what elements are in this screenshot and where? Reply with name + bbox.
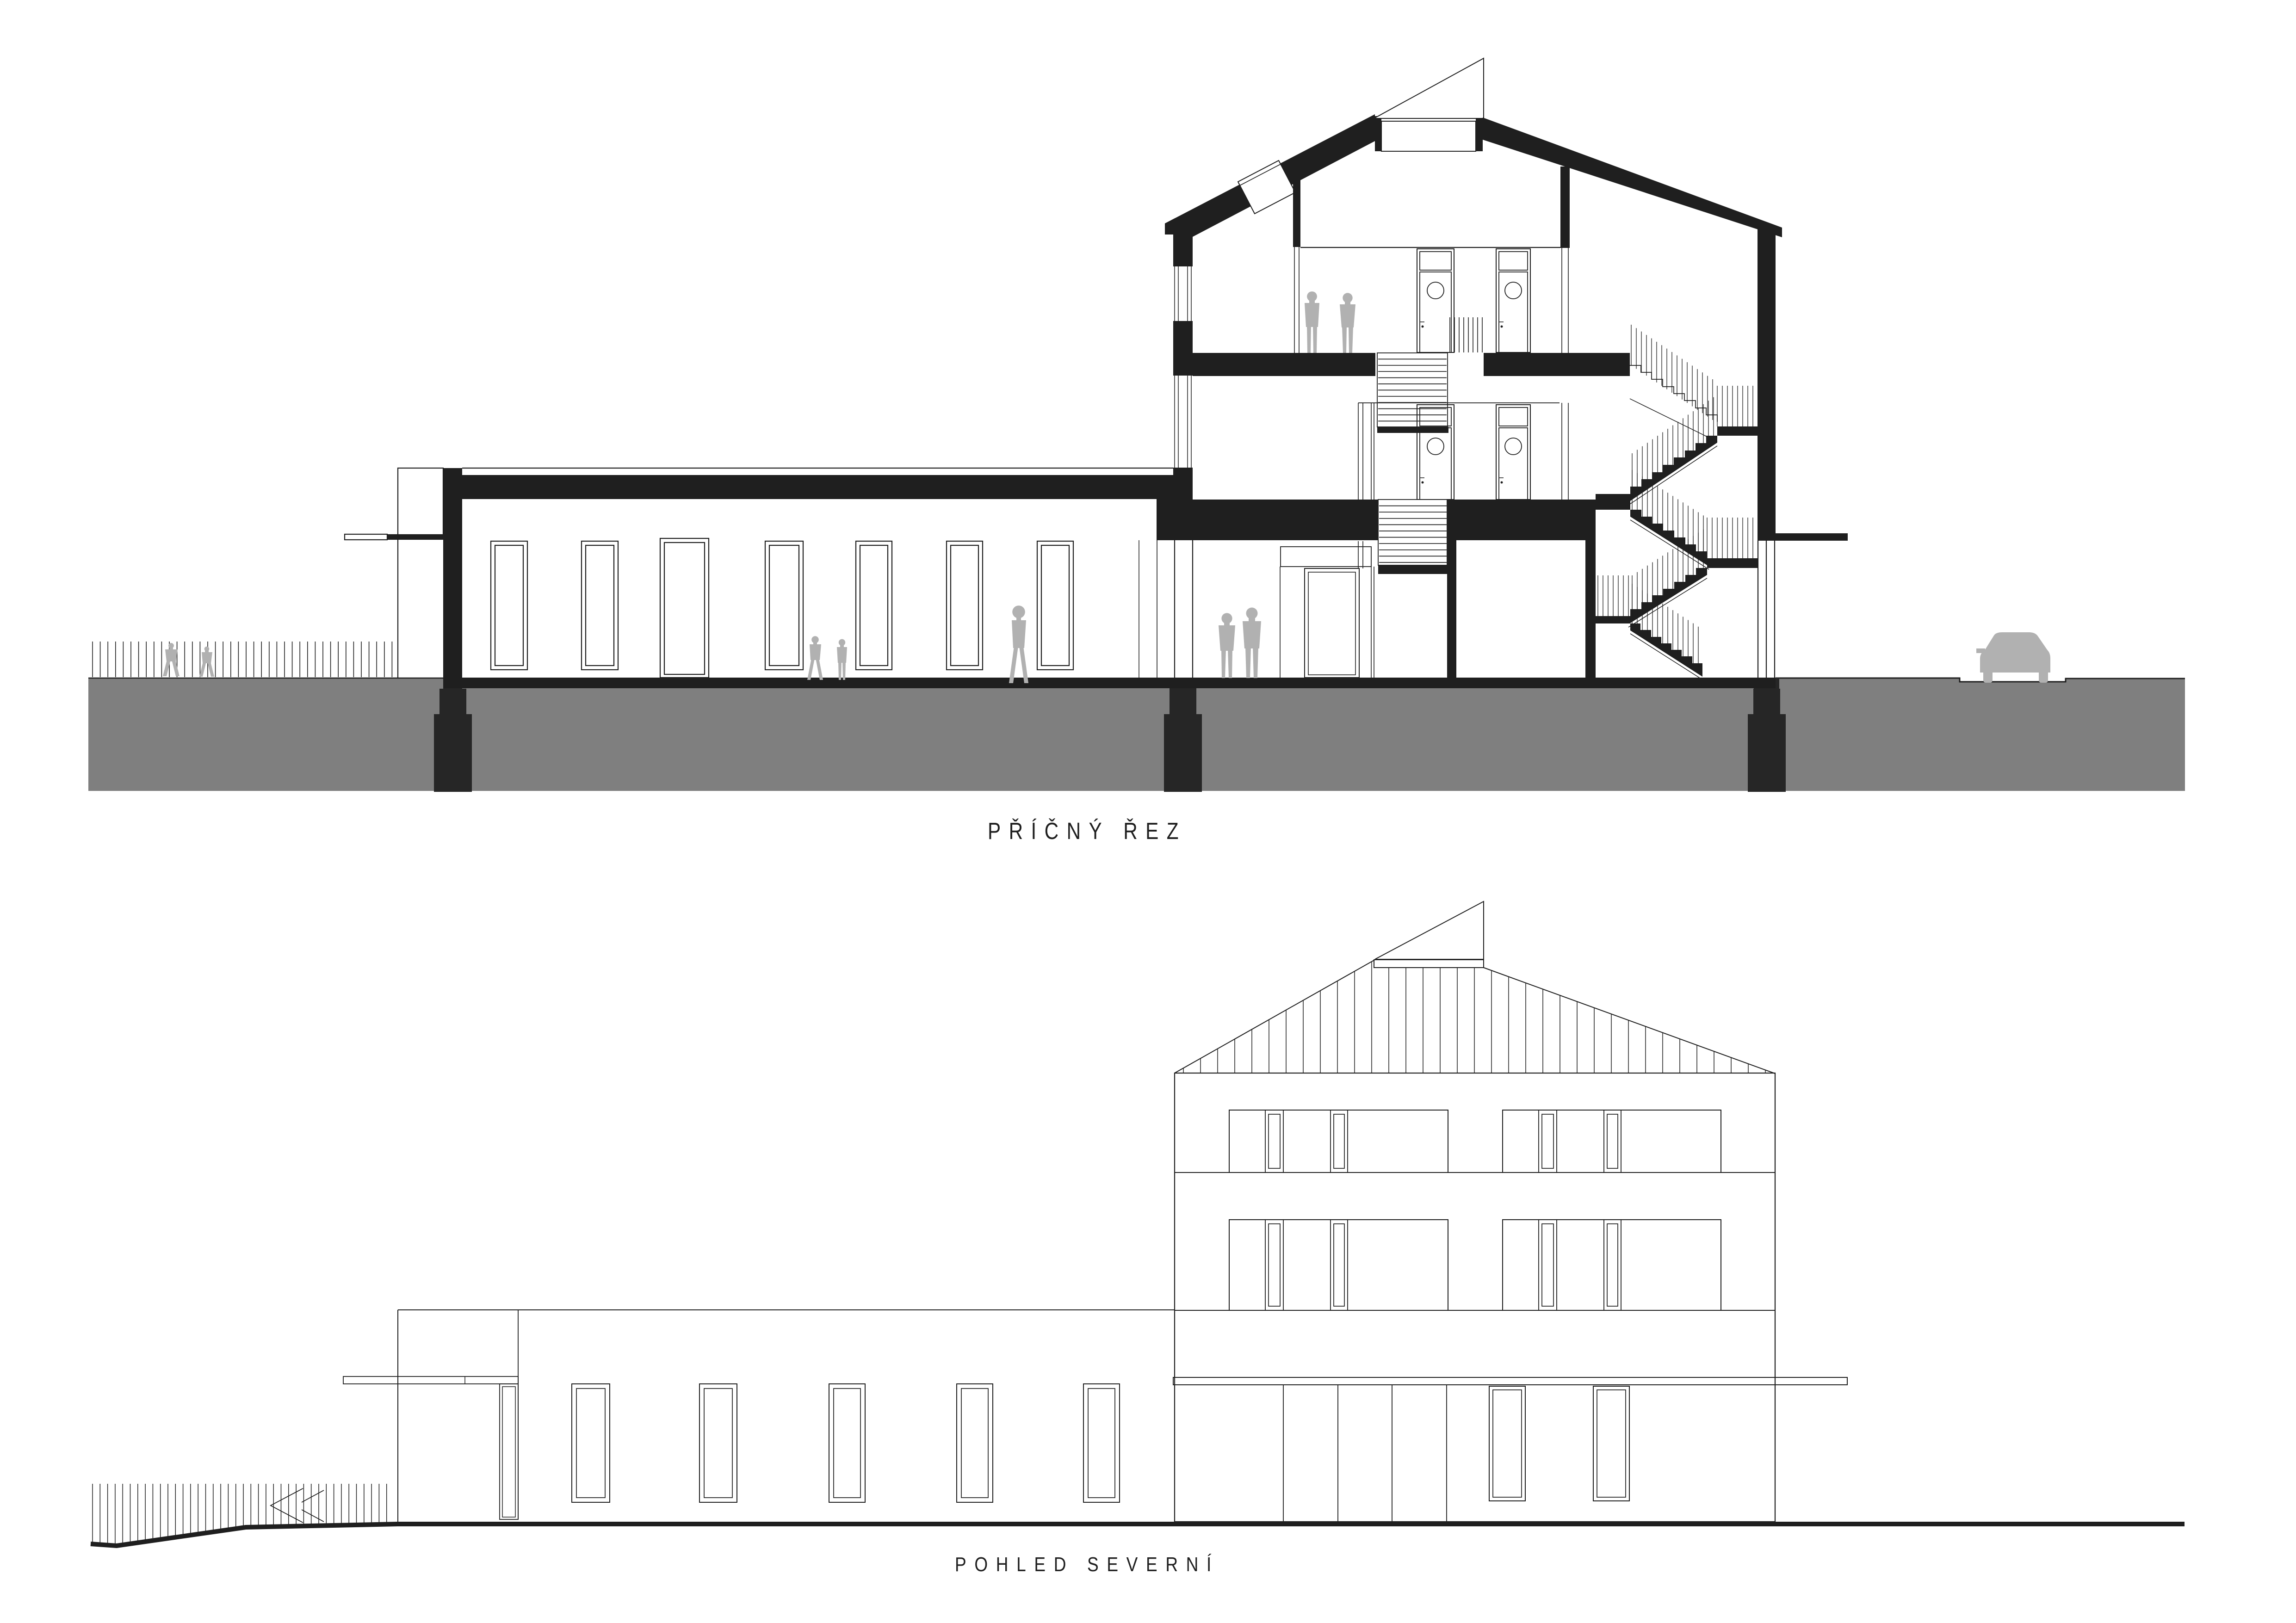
- svg-text:PŘÍČNÝ ŘEZ: PŘÍČNÝ ŘEZ: [988, 818, 1187, 844]
- svg-text:POHLED SEVERNÍ: POHLED SEVERNÍ: [955, 1553, 1219, 1576]
